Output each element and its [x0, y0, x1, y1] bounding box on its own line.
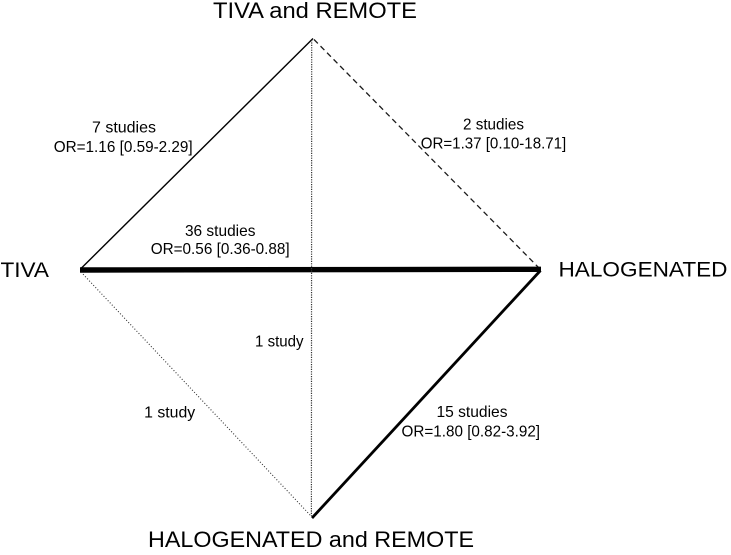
- svg-text:36 studies: 36 studies: [185, 223, 256, 240]
- svg-text:OR=1.16 [0.59-2.29]: OR=1.16 [0.59-2.29]: [54, 139, 193, 156]
- svg-text:1 study: 1 study: [144, 405, 195, 422]
- svg-text:7 studies: 7 studies: [92, 120, 156, 137]
- svg-text:OR=0.56 [0.36-0.88]: OR=0.56 [0.36-0.88]: [151, 241, 290, 258]
- svg-text:HALOGENATED: HALOGENATED: [559, 257, 728, 282]
- svg-text:1 study: 1 study: [255, 334, 304, 351]
- svg-text:15 studies: 15 studies: [437, 404, 508, 421]
- svg-text:OR=1.37 [0.10-18.71]: OR=1.37 [0.10-18.71]: [421, 136, 567, 153]
- svg-text:TIVA: TIVA: [1, 258, 50, 282]
- svg-text:2 studies: 2 studies: [463, 117, 524, 134]
- svg-text:HALOGENATED and REMOTE: HALOGENATED and REMOTE: [148, 527, 474, 552]
- svg-text:OR=1.80 [0.82-3.92]: OR=1.80 [0.82-3.92]: [402, 424, 541, 441]
- svg-text:TIVA and REMOTE: TIVA and REMOTE: [213, 0, 417, 23]
